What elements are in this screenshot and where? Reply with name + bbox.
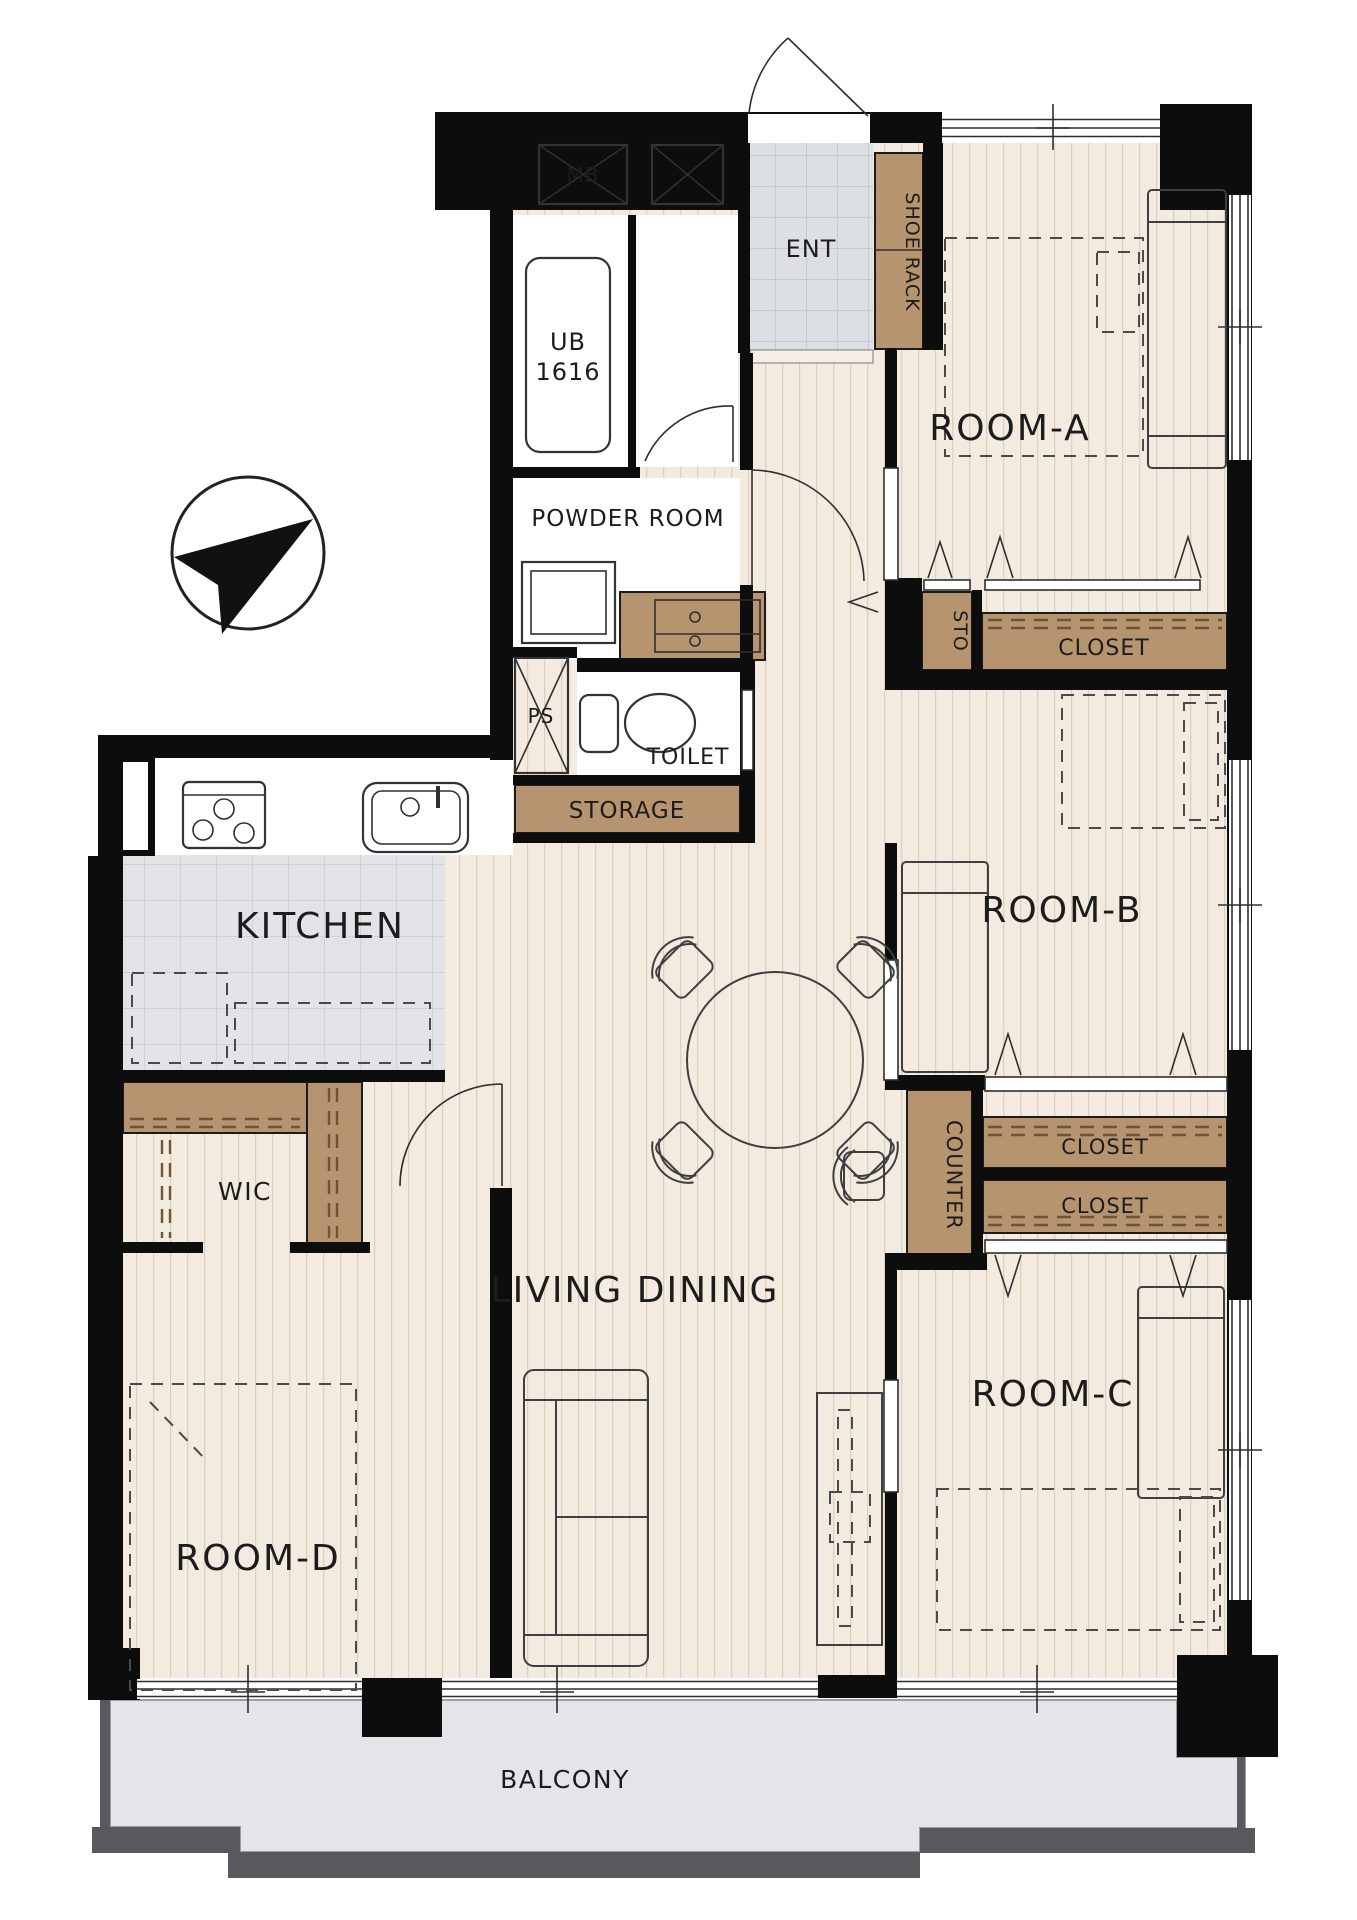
closet-c-door-opening — [985, 1240, 1227, 1253]
wic-label: WIC — [218, 1177, 272, 1206]
ent-label: ENT — [786, 235, 837, 263]
floor-room-d — [88, 1082, 512, 1678]
kitchen-label: KITCHEN — [235, 906, 405, 947]
closet-b-door-opening — [985, 1077, 1227, 1091]
room-c-sliding-door — [884, 1380, 898, 1492]
closet-a-label: CLOSET — [1058, 636, 1149, 661]
room-a-sliding-door — [884, 468, 898, 580]
toilet-label: TOILET — [646, 745, 730, 770]
toilet-door-opening — [742, 690, 753, 770]
room-c-label: ROOM-C — [972, 1374, 1135, 1415]
room-d-label: ROOM-D — [175, 1538, 340, 1579]
floor-plan: MB ENT SHOE RACK UB 1616 POWDER ROOM PS … — [0, 0, 1357, 1920]
bathroom-area — [513, 215, 738, 467]
storage-label: STORAGE — [569, 798, 686, 824]
balcony-rail-bottom-right — [920, 1828, 1255, 1853]
room-b-label: ROOM-B — [981, 890, 1142, 931]
balcony-rail-bottom — [228, 1852, 920, 1878]
mb-label: MB — [567, 163, 600, 187]
closet-b-label: CLOSET — [1061, 1135, 1149, 1159]
north-compass-icon — [172, 477, 324, 634]
ps-label: PS — [528, 704, 555, 728]
ub-label-line2: 1616 — [535, 358, 600, 386]
wic-hanger-top — [123, 1082, 307, 1133]
floor-plan-page: MB ENT SHOE RACK UB 1616 POWDER ROOM PS … — [0, 0, 1357, 1920]
balcony-rail-right — [1237, 1757, 1245, 1828]
powder-room-label: POWDER ROOM — [531, 506, 724, 532]
kitchen-wall-slot — [123, 762, 148, 850]
balcony-rail-step — [92, 1827, 240, 1853]
shoe-rack-label: SHOE RACK — [901, 192, 923, 311]
ub-label-line1: UB — [550, 328, 586, 356]
room-a-label: ROOM-A — [929, 408, 1091, 449]
wic-hanger-right — [307, 1082, 362, 1243]
kitchen-counter-area — [98, 758, 490, 855]
sto-door-opening — [924, 580, 970, 590]
living-dining-label: LIVING DINING — [491, 1270, 780, 1311]
sto-label: STO — [949, 610, 971, 652]
closet-c-label: CLOSET — [1061, 1194, 1149, 1218]
closet-a-door-opening — [985, 580, 1200, 590]
entrance-step — [750, 350, 873, 363]
kitchen-tile-floor — [123, 855, 445, 1070]
entrance-door-arc — [749, 38, 868, 116]
balcony — [92, 1700, 1255, 1878]
balcony-rail-left — [100, 1700, 110, 1827]
balcony-label: BALCONY — [500, 1765, 630, 1794]
counter-label: COUNTER — [942, 1120, 966, 1230]
entrance-opening — [748, 114, 870, 143]
